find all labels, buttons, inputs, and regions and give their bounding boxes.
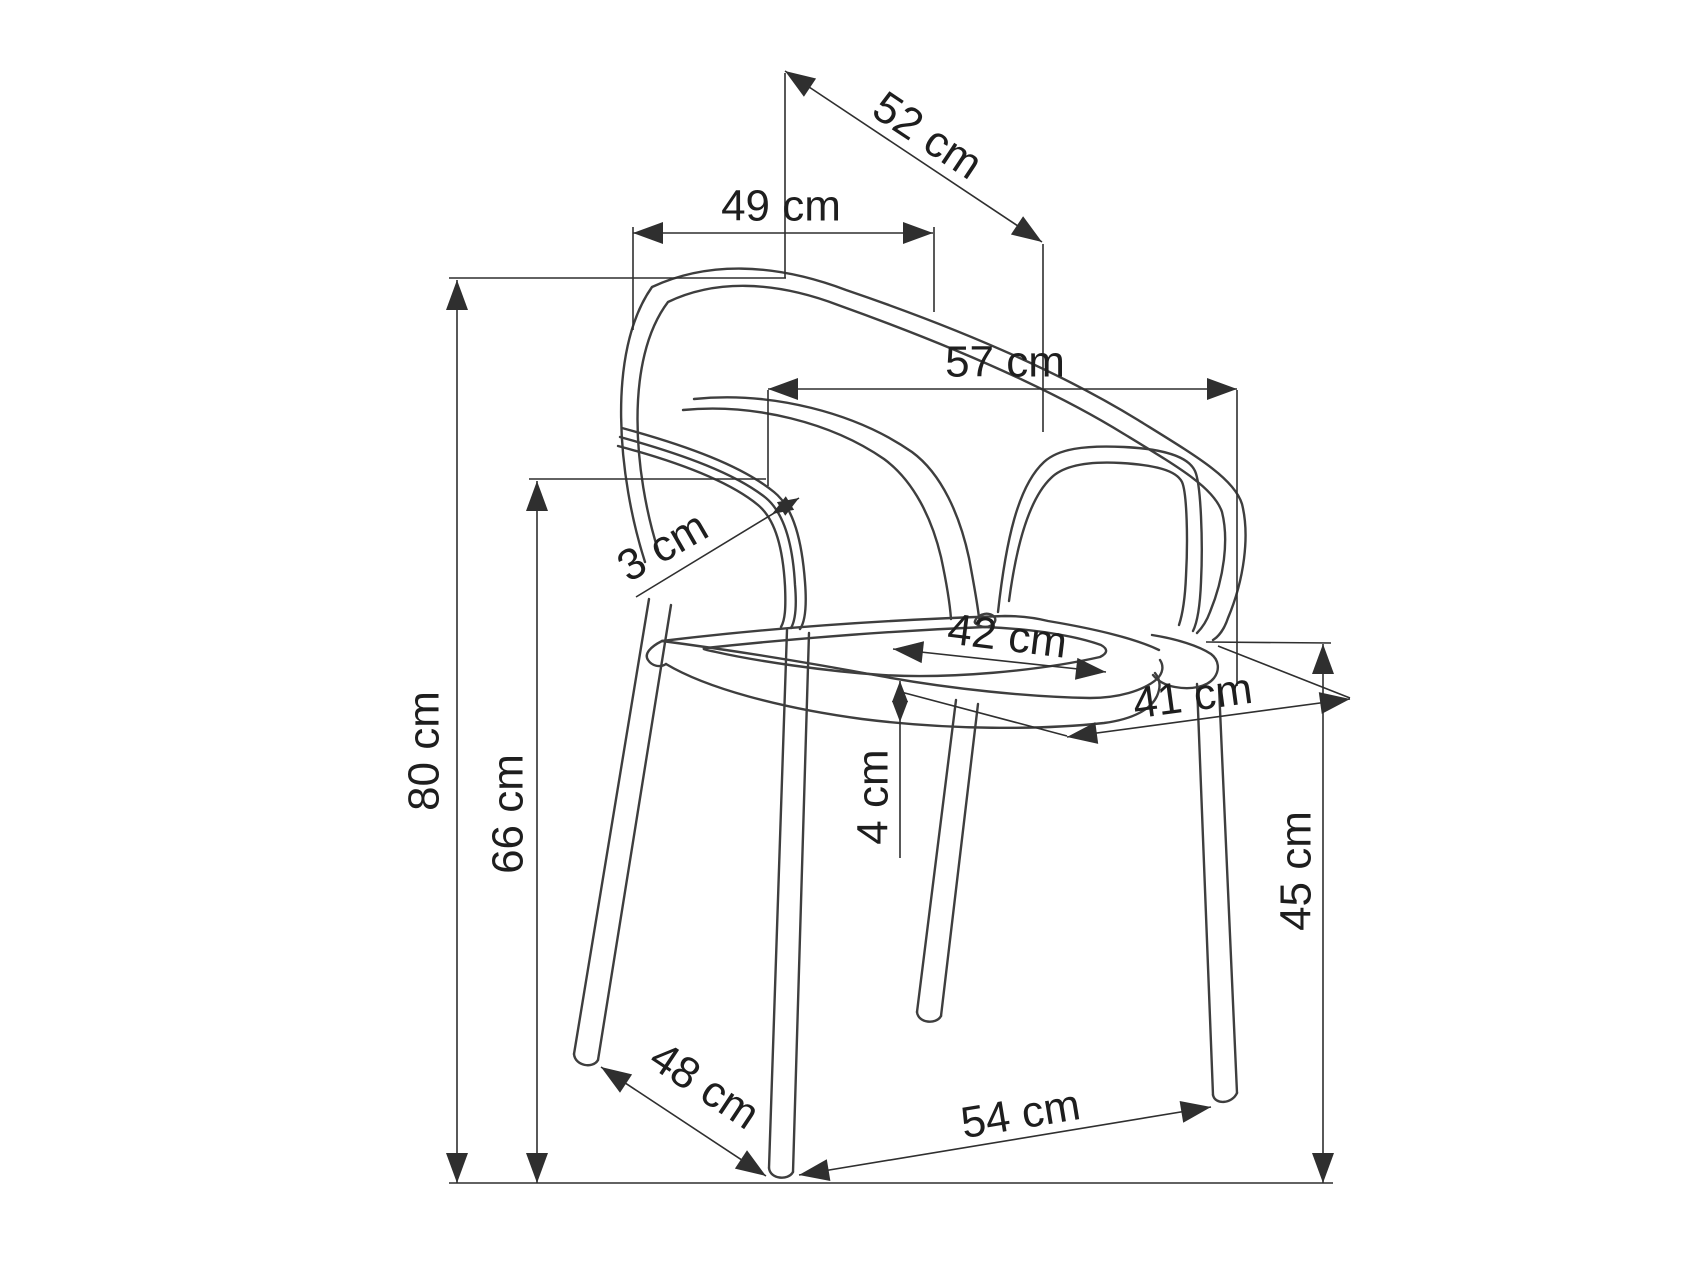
dim-back-top-diagonal-arrow-1 <box>1011 216 1042 242</box>
dim-backrest-width-arrow-1 <box>903 222 933 244</box>
dim-armrest-height-label: 66 cm <box>484 754 533 874</box>
chair-armrest-right-opening <box>998 447 1202 631</box>
dim-armrest-height-arrow-0 <box>526 481 548 511</box>
chair-leg-back-left-b <box>598 605 671 1060</box>
diagram-canvas: 52 cm49 cm57 cm3 cm42 cm41 cm4 cm80 cm66… <box>0 0 1702 1276</box>
dim-seat-rim-thickness-label: 4 cm <box>849 749 898 844</box>
chair-leg-back-left-a <box>574 599 649 1054</box>
dim-base-depth-arrow-1 <box>735 1150 766 1176</box>
dim-armrest-thickness-arrow-1 <box>772 496 794 514</box>
chair-backrest-inner <box>638 286 1226 633</box>
dim-seat-height-arrow-1 <box>1312 1153 1334 1183</box>
dim-seat-height-ext-0 <box>1206 642 1331 643</box>
dim-seat-height-arrow-0 <box>1312 644 1334 674</box>
chair-leg-back-left-foot <box>574 1054 598 1065</box>
chair-dimension-diagram: 52 cm49 cm57 cm3 cm42 cm41 cm4 cm80 cm66… <box>0 0 1702 1276</box>
dim-seat-width-arrow-1 <box>1075 658 1106 680</box>
dim-overall-height-label: 80 cm <box>400 691 449 811</box>
chair-leg-front-right-a <box>1197 684 1213 1095</box>
chair-leg-front-left-b <box>793 633 809 1172</box>
dim-overall-height-arrow-0 <box>446 280 468 310</box>
dim-overall-width-arrow-1 <box>1207 378 1237 400</box>
chair-leg-back-right-b <box>941 704 978 1016</box>
dim-base-width-arrow-0 <box>799 1159 830 1181</box>
chair-back-panel-left <box>694 397 979 618</box>
dim-back-top-diagonal-arrow-0 <box>785 71 816 97</box>
dim-base-width-label: 54 cm <box>957 1080 1083 1148</box>
chair-leg-front-right-b <box>1219 687 1237 1093</box>
chair-backrest-outer <box>621 269 1245 640</box>
dim-base-width-arrow-1 <box>1180 1101 1211 1123</box>
dim-seat-depth-label: 41 cm <box>1130 664 1255 729</box>
dim-seat-rim-thickness-arrow-0 <box>892 681 908 702</box>
chair-back-panel-left-inner <box>683 409 951 619</box>
chair-leg-front-left-foot <box>769 1168 793 1178</box>
dim-seat-rim-thickness-arrow-1 <box>892 701 908 722</box>
dim-overall-height-arrow-1 <box>446 1153 468 1183</box>
chair-leg-front-left-a <box>769 630 787 1168</box>
dim-base-depth-arrow-0 <box>601 1067 632 1093</box>
dim-seat-width-label: 42 cm <box>945 605 1070 668</box>
dim-seat-width-arrow-0 <box>893 641 924 663</box>
dim-overall-width-label: 57 cm <box>945 338 1065 387</box>
dim-overall-width-arrow-0 <box>768 378 798 400</box>
dim-seat-height-label: 45 cm <box>1272 811 1321 931</box>
dim-backrest-width-label: 49 cm <box>721 182 841 231</box>
dim-seat-depth-ext-0 <box>901 692 1067 736</box>
dim-backrest-width-arrow-0 <box>633 222 663 244</box>
chair-leg-back-right-foot <box>917 1012 941 1022</box>
chair-leg-back-right-a <box>917 700 956 1012</box>
chair-armrest-right-opening-inner <box>1009 463 1187 625</box>
dim-armrest-thickness-label: 3 cm <box>609 501 716 591</box>
dim-base-depth-label: 48 cm <box>641 1032 768 1139</box>
dim-armrest-height-arrow-1 <box>526 1153 548 1183</box>
chair-leg-front-right-foot <box>1213 1093 1237 1102</box>
